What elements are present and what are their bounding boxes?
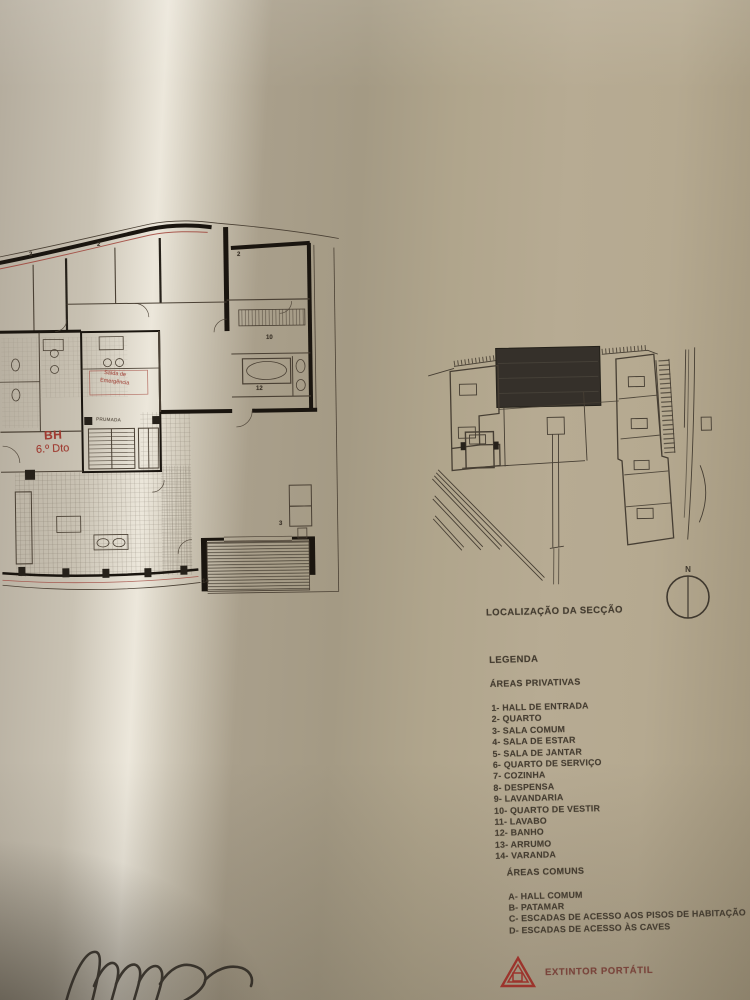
extinguisher-icon: [502, 958, 534, 986]
room-number: 3: [279, 521, 282, 527]
unit-label-line2: 6.º Dto: [36, 442, 70, 456]
legend-common-list: A- HALL COMUM B- PATAMAR C- ESCADAS DE A…: [508, 885, 746, 936]
signature: [66, 952, 252, 1000]
section-highlight: [496, 346, 601, 407]
legend-title: LEGENDA: [489, 654, 539, 666]
room-number: 14: [202, 579, 209, 585]
room-number: 2: [237, 252, 240, 258]
legend-common-title: ÁREAS COMUNS: [507, 866, 585, 878]
room-number: 2: [29, 252, 32, 258]
floor-plan-drawing: [0, 219, 344, 596]
photographed-page: N Saída de Emergência PRUMADA BH 6.º Dto…: [0, 0, 750, 1000]
unit-label-line1: BH: [44, 428, 63, 443]
room-number: 10: [266, 335, 273, 341]
legend-private-list: 1- HALL DE ENTRADA 2- QUARTO 3- SALA COM…: [491, 700, 604, 862]
north-compass: N: [667, 565, 709, 618]
room-number: 2: [97, 242, 100, 248]
extinguisher-label: EXTINTOR PORTÁTIL: [545, 965, 653, 978]
compass-n-label: N: [685, 565, 691, 574]
room-number: 12: [256, 386, 263, 392]
shaft-label: PRUMADA: [96, 417, 121, 423]
drawing-overlay: N: [0, 0, 750, 1000]
site-plan-drawing: [428, 344, 715, 587]
